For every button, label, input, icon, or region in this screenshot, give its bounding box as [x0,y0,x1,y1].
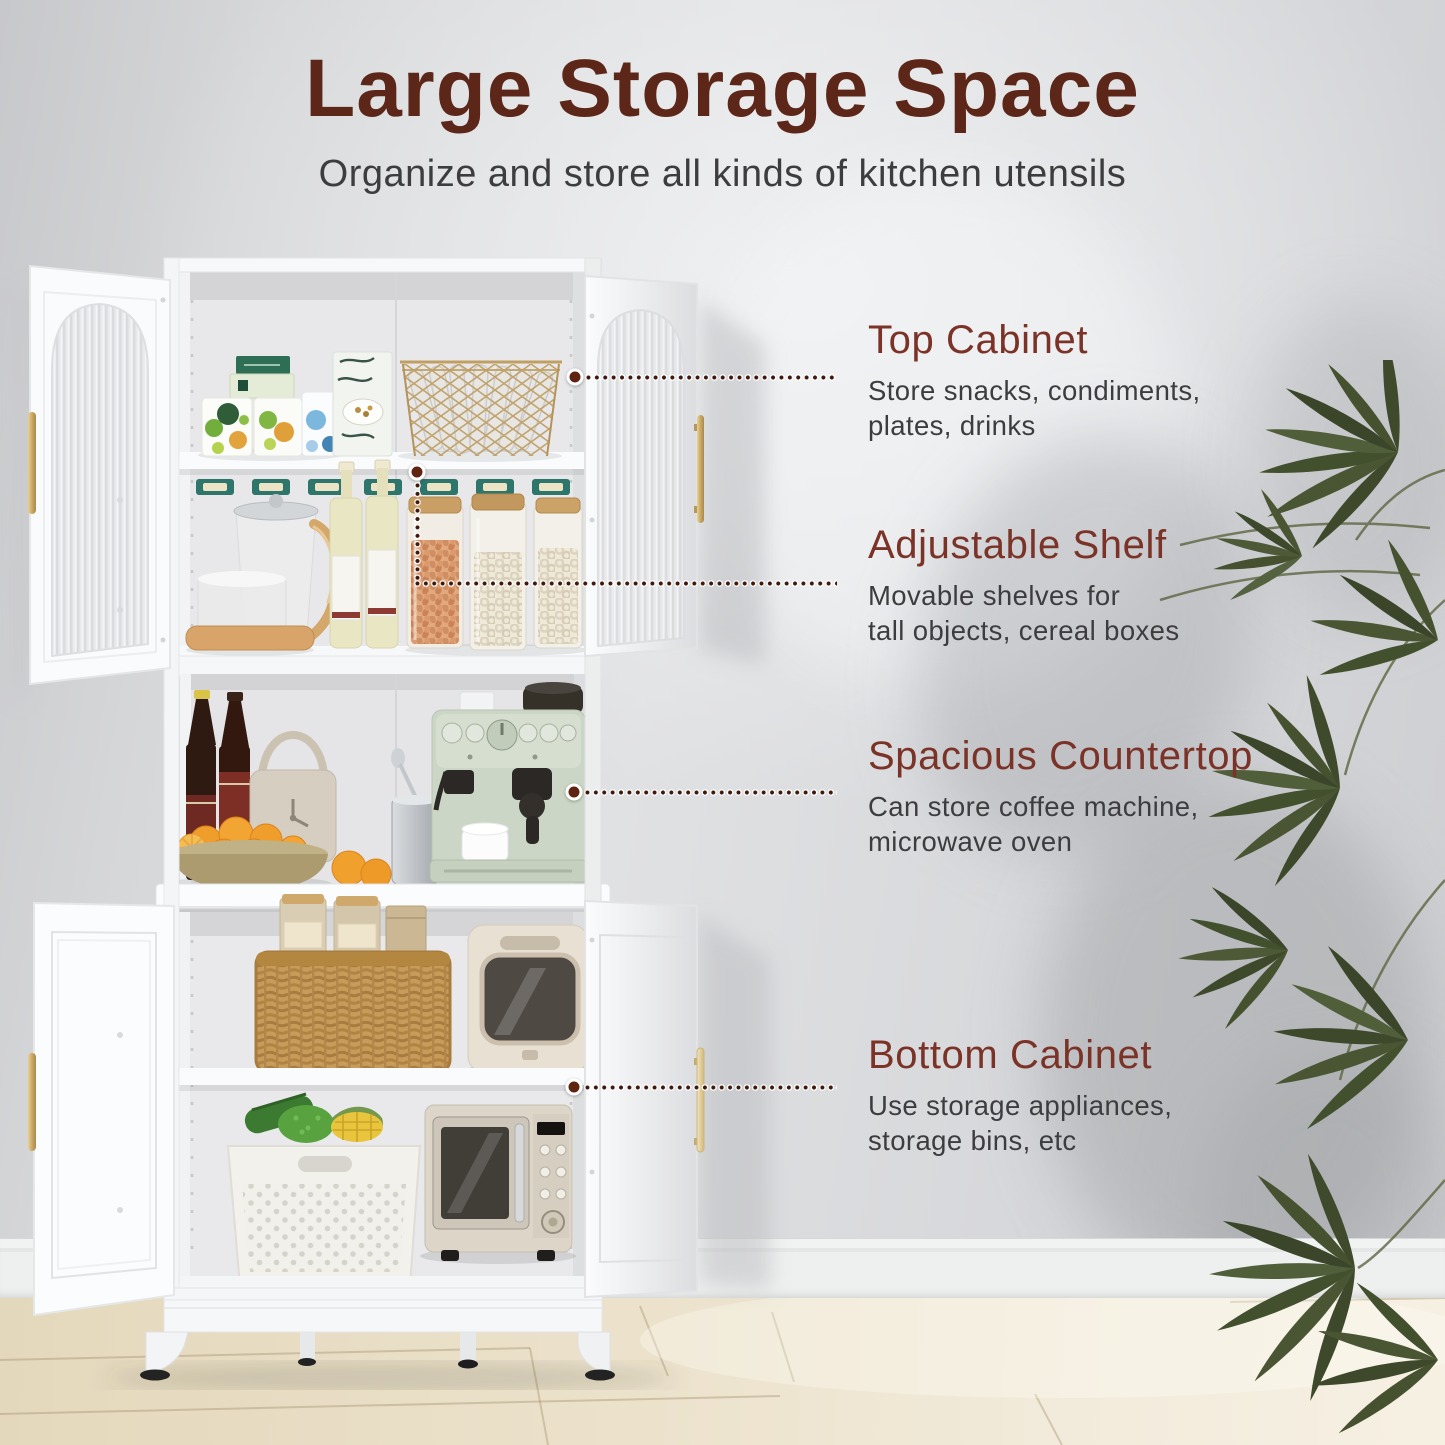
callout-heading: Top Cabinet [868,318,1433,363]
page-subtitle: Organize and store all kinds of kitchen … [0,153,1445,196]
callout-spacious-countertop: Spacious Countertop Can store coffee mac… [868,734,1433,859]
page-title: Large Storage Space [0,42,1445,136]
leader-dot-top-cabinet [567,369,584,386]
callout-heading: Bottom Cabinet [868,1033,1433,1078]
callout-body-line: Store snacks, condiments, [868,373,1433,408]
leader-line-adjustable-shelf [414,580,837,587]
callout-body-line: plates, drinks [868,408,1433,443]
bottom-right-door [585,901,704,1297]
top-left-door [28,266,170,684]
bottom-shelf [178,1068,585,1085]
callout-body-line: microwave oven [868,824,1433,859]
top-right-door [585,276,704,656]
callout-heading: Adjustable Shelf [868,523,1433,568]
leader-line-bottom-cabinet [584,1084,837,1091]
countertop-surface [156,884,610,909]
bottom-left-door [28,903,174,1315]
leader-dot-bottom-cabinet [566,1079,583,1096]
leader-dot-adjustable-shelf [409,464,426,481]
callout-heading: Spacious Countertop [868,734,1433,779]
leader-line-spacious-countertop [584,789,837,796]
leader-line-adjustable-shelf-vertical [414,482,421,580]
callout-body-line: storage bins, etc [868,1123,1433,1158]
callout-body-line: Movable shelves for [868,578,1433,613]
mid-rail [164,656,602,676]
callout-adjustable-shelf: Adjustable Shelf Movable shelves for tal… [868,523,1433,648]
leader-dot-spacious-countertop [566,784,583,801]
callout-top-cabinet: Top Cabinet Store snacks, condiments, pl… [868,318,1433,443]
callout-body-line: Can store coffee machine, [868,789,1433,824]
callout-body-line: Use storage appliances, [868,1088,1433,1123]
callout-bottom-cabinet: Bottom Cabinet Use storage appliances, s… [868,1033,1433,1158]
leader-line-top-cabinet [585,374,837,381]
callout-body-line: tall objects, cereal boxes [868,613,1433,648]
product-infographic: Large Storage Space Organize and store a… [0,0,1445,1445]
cabinet-illustration [0,250,810,1390]
